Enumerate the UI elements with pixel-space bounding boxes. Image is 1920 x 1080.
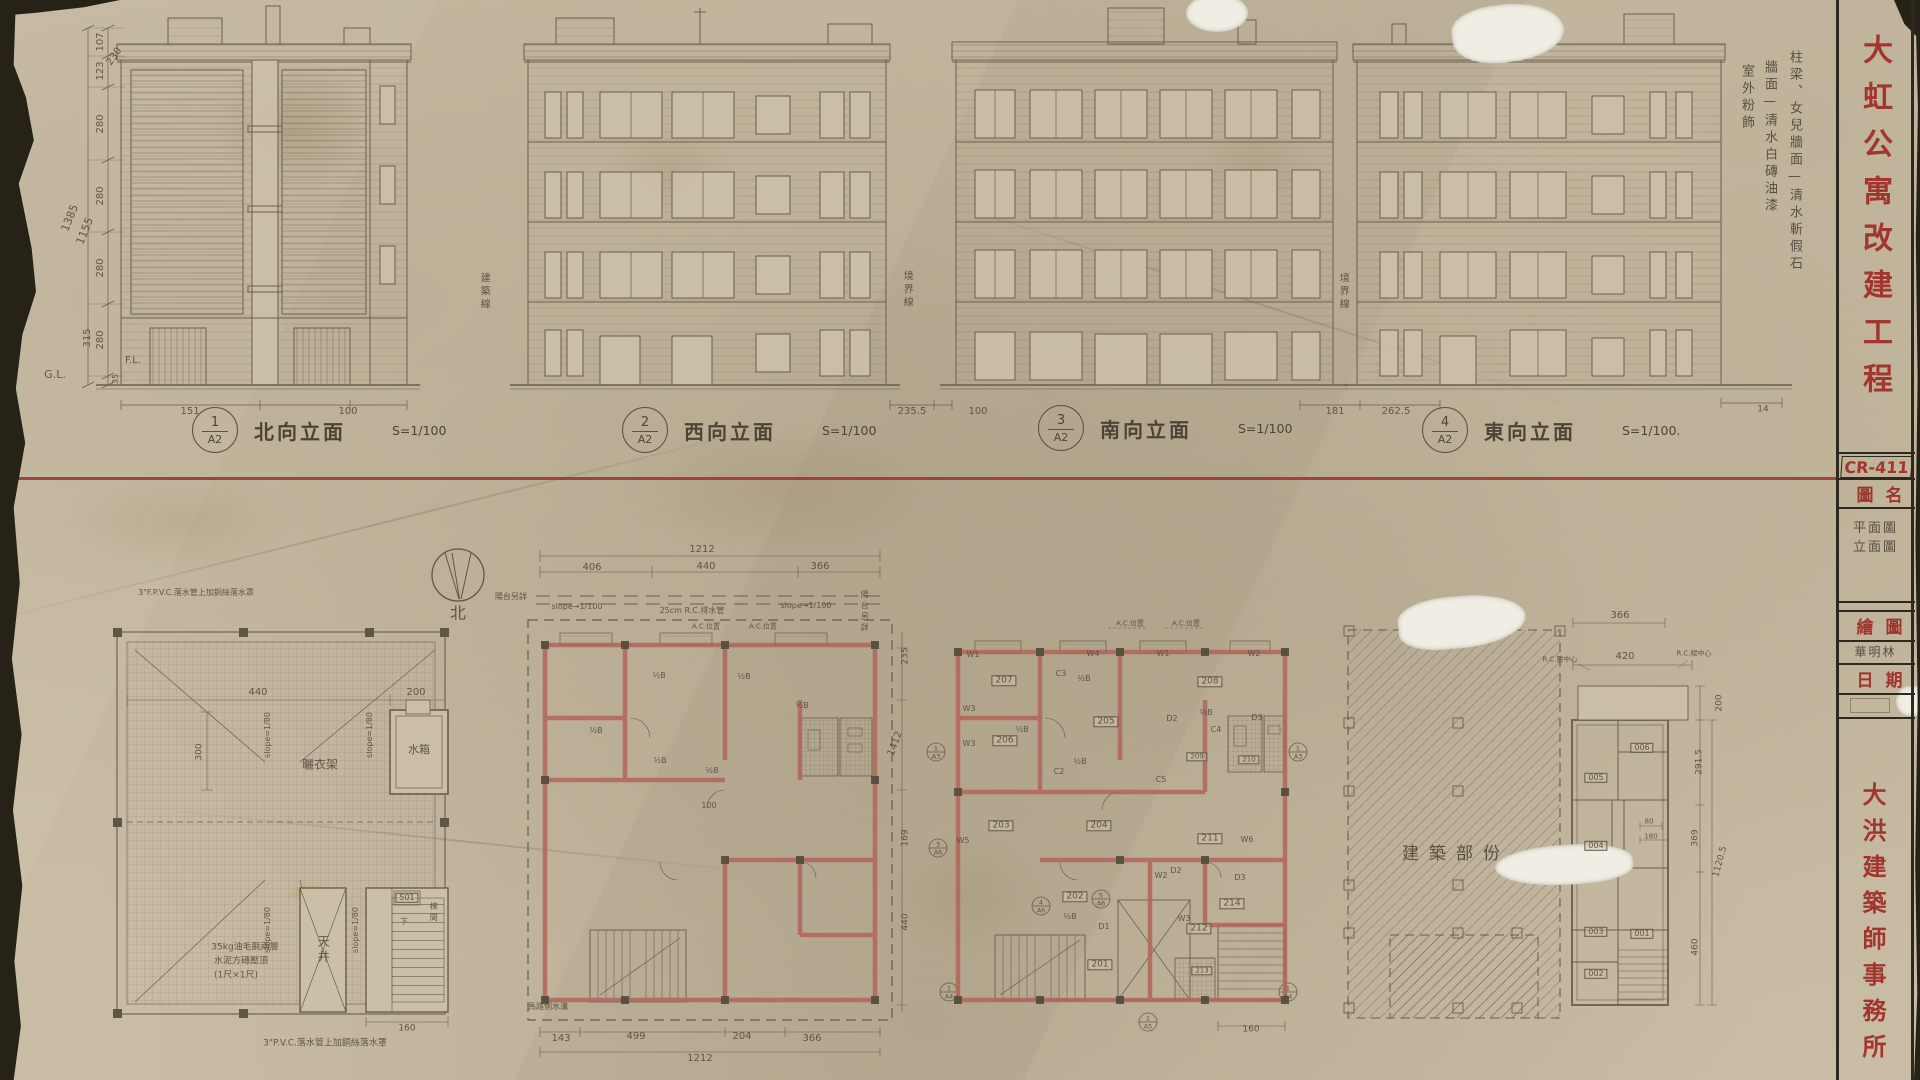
elevation-scale: S=1/100. bbox=[1622, 423, 1680, 438]
elevation-scale: S=1/100 bbox=[1238, 421, 1292, 436]
drawing-linework bbox=[0, 0, 1920, 1080]
sheet-ref: A2 bbox=[638, 432, 653, 445]
sheet-number: CR-411 bbox=[1840, 456, 1913, 478]
elevation-scale: S=1/100 bbox=[822, 423, 876, 438]
project-title: 大虹公寓改建工程 bbox=[1852, 34, 1896, 410]
finish-note-1: 柱梁、女兒牆面—清水斬假石 bbox=[1788, 50, 1801, 273]
title-block-rule bbox=[1836, 601, 1915, 603]
detail-number: 1 bbox=[202, 416, 228, 432]
elevation-name: 西向立面 bbox=[684, 416, 776, 445]
detail-bubble: 1A2 bbox=[192, 407, 238, 453]
red-divider-line bbox=[0, 477, 1837, 480]
sheet-ref: A2 bbox=[1438, 432, 1453, 445]
field-label-drawing-name: 圖名 bbox=[1839, 480, 1920, 507]
finish-note-3: 室外粉飾 bbox=[1740, 64, 1753, 132]
title-block-rule bbox=[1836, 507, 1915, 509]
elevation-name: 東向立面 bbox=[1484, 416, 1576, 445]
field-value-drawing-name: 平面圖 立面圖 bbox=[1839, 510, 1912, 562]
field-value-drawn-by: 華明林 bbox=[1839, 641, 1912, 662]
title-block-rule bbox=[1836, 693, 1915, 695]
elevation-name: 北向立面 bbox=[254, 416, 346, 445]
detail-bubble: 3A2 bbox=[1038, 405, 1084, 451]
finish-note-2: 牆面—清水白磚油漆 bbox=[1763, 60, 1776, 215]
title-block-rule bbox=[1836, 452, 1915, 454]
detail-number: 3 bbox=[1048, 414, 1074, 430]
elevation-caption-north: 1A2 北向立面 S=1/100 bbox=[192, 407, 446, 453]
date-stamp-box bbox=[1850, 698, 1890, 713]
detail-bubble: 2A2 bbox=[622, 407, 668, 453]
elevation-name: 南向立面 bbox=[1100, 414, 1192, 443]
field-label-date: 日期 bbox=[1839, 664, 1920, 692]
field-label-drawn-by: 繪圖 bbox=[1839, 612, 1920, 639]
detail-number: 2 bbox=[632, 416, 658, 432]
elevation-caption-south: 3A2 南向立面 S=1/100 bbox=[1038, 405, 1292, 451]
elevation-caption-west: 2A2 西向立面 S=1/100 bbox=[622, 407, 876, 453]
elevation-caption-east: 4A2 東向立面 S=1/100. bbox=[1422, 407, 1680, 453]
title-block-rule bbox=[1836, 717, 1915, 719]
drawing-sheet: 1A2 北向立面 S=1/100 2A2 西向立面 S=1/100 3A2 南向… bbox=[0, 0, 1920, 1080]
detail-bubble: 4A2 bbox=[1422, 407, 1468, 453]
elevation-scale: S=1/100 bbox=[392, 423, 446, 438]
sheet-ref: A2 bbox=[1054, 430, 1069, 443]
detail-number: 4 bbox=[1432, 416, 1458, 432]
sheet-ref: A2 bbox=[208, 432, 223, 445]
architect-firm-name: 大洪建築師事務所 bbox=[1855, 782, 1890, 1070]
